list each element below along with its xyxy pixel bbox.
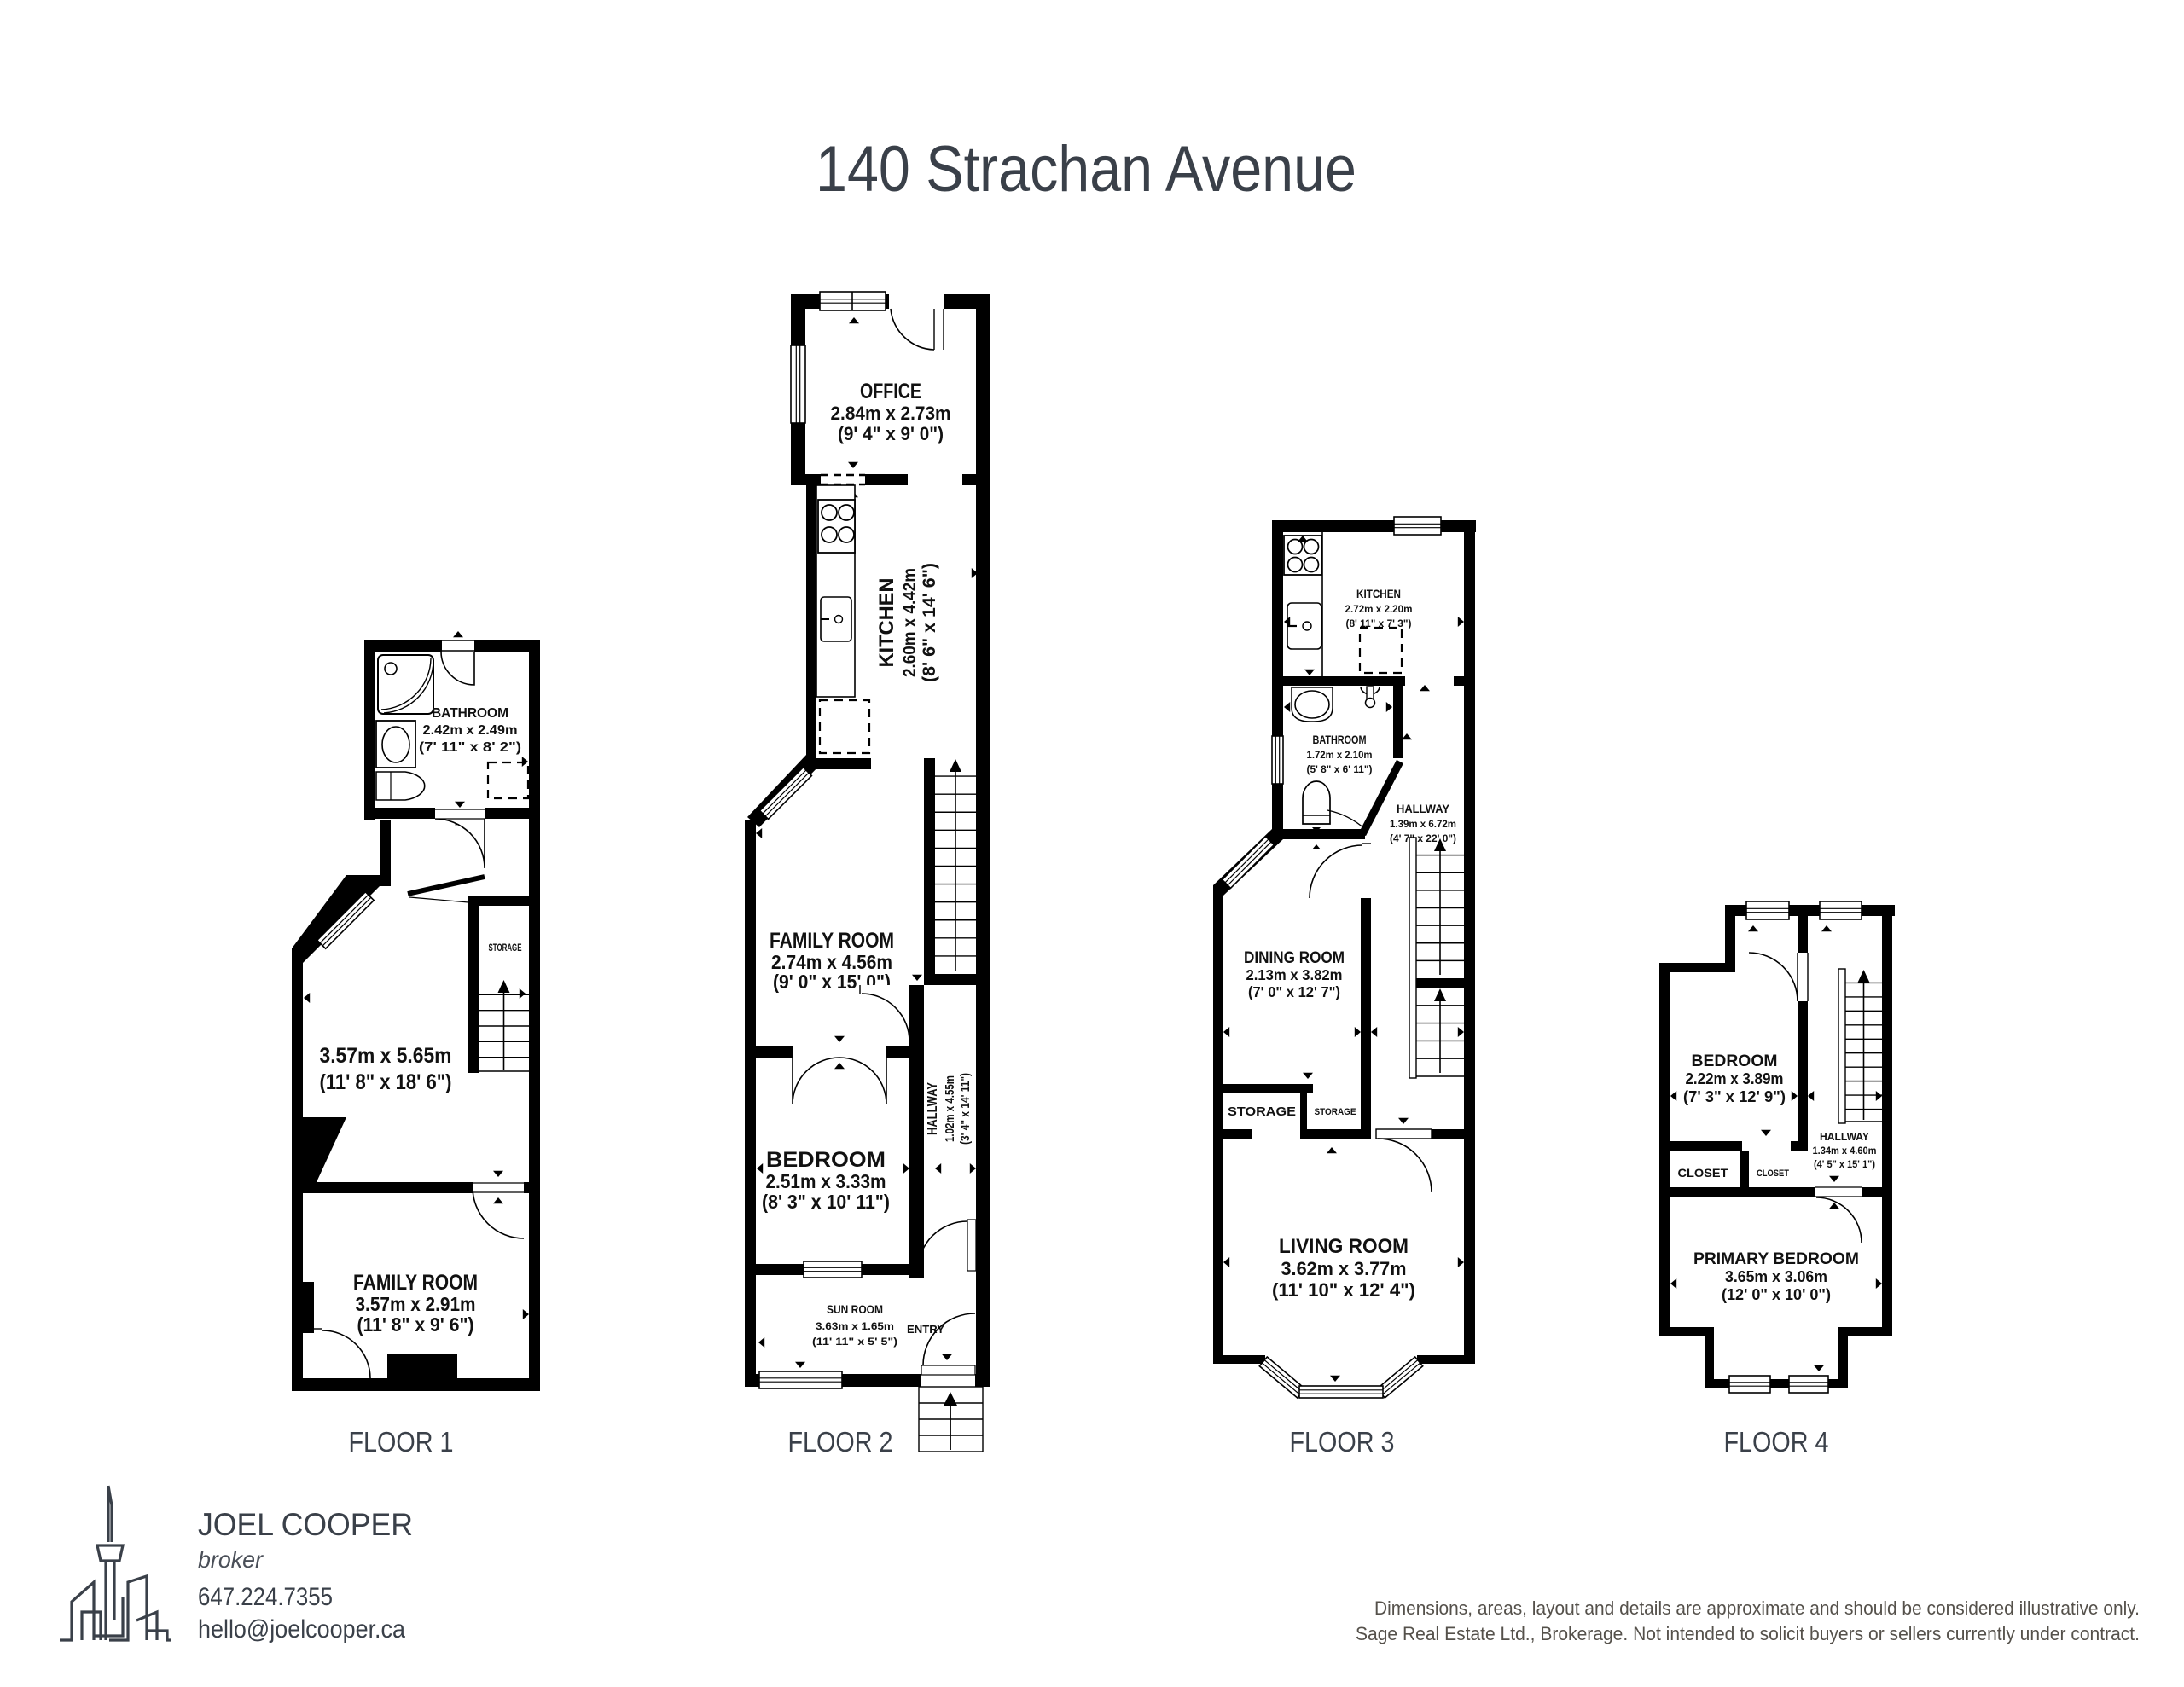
svg-text:FLOOR 2: FLOOR 2 bbox=[788, 1426, 893, 1458]
svg-text:2.72m x 2.20m: 2.72m x 2.20m bbox=[1345, 603, 1413, 615]
svg-text:140 Strachan Avenue: 140 Strachan Avenue bbox=[816, 133, 1356, 206]
svg-text:1.72m x 2.10m: 1.72m x 2.10m bbox=[1307, 749, 1373, 761]
svg-text:3.63m x 1.65m: 3.63m x 1.65m bbox=[816, 1320, 894, 1332]
svg-text:2.22m x 3.89m: 2.22m x 3.89m bbox=[1686, 1070, 1784, 1087]
svg-text:(8' 6" x 14' 6"): (8' 6" x 14' 6") bbox=[920, 563, 939, 682]
svg-text:(7' 3" x 12' 9"): (7' 3" x 12' 9") bbox=[1683, 1088, 1786, 1105]
svg-text:SUN ROOM: SUN ROOM bbox=[827, 1303, 883, 1316]
svg-text:2.42m x 2.49m: 2.42m x 2.49m bbox=[423, 723, 518, 738]
svg-text:DINING ROOM: DINING ROOM bbox=[1244, 949, 1345, 967]
svg-text:STORAGE: STORAGE bbox=[1315, 1107, 1356, 1117]
svg-text:FLOOR 1: FLOOR 1 bbox=[349, 1426, 454, 1458]
svg-text:(4' 5" x 15' 1"): (4' 5" x 15' 1") bbox=[1814, 1160, 1875, 1170]
svg-text:1.39m x 6.72m: 1.39m x 6.72m bbox=[1390, 818, 1456, 830]
svg-text:STORAGE: STORAGE bbox=[1228, 1105, 1296, 1119]
svg-text:3.65m x 3.06m: 3.65m x 3.06m bbox=[1725, 1268, 1827, 1285]
svg-text:PRIMARY BEDROOM: PRIMARY BEDROOM bbox=[1693, 1249, 1859, 1268]
svg-text:FAMILY ROOM: FAMILY ROOM bbox=[770, 929, 894, 953]
svg-text:hello@joelcooper.ca: hello@joelcooper.ca bbox=[198, 1615, 405, 1644]
svg-text:(11' 10" x 12' 4"): (11' 10" x 12' 4") bbox=[1272, 1279, 1415, 1301]
svg-text:BATHROOM: BATHROOM bbox=[1313, 733, 1367, 746]
svg-text:(4' 7" x 22' 0"): (4' 7" x 22' 0") bbox=[1390, 832, 1456, 844]
svg-text:FAMILY ROOM: FAMILY ROOM bbox=[353, 1271, 478, 1295]
svg-text:2.60m x 4.42m: 2.60m x 4.42m bbox=[900, 568, 920, 677]
svg-text:FLOOR 3: FLOOR 3 bbox=[1290, 1426, 1395, 1458]
svg-text:(7' 11" x 8' 2"): (7' 11" x 8' 2") bbox=[419, 740, 521, 755]
svg-text:Dimensions, areas, layout and: Dimensions, areas, layout and details ar… bbox=[1374, 1597, 2140, 1619]
svg-text:1.34m x 4.60m: 1.34m x 4.60m bbox=[1813, 1146, 1877, 1157]
svg-text:OFFICE: OFFICE bbox=[860, 380, 921, 403]
svg-text:2.51m x 3.33m: 2.51m x 3.33m bbox=[766, 1170, 886, 1192]
svg-text:3.57m x 5.65m: 3.57m x 5.65m bbox=[320, 1044, 452, 1068]
svg-text:(12' 0" x 10' 0"): (12' 0" x 10' 0") bbox=[1722, 1286, 1831, 1303]
svg-text:1.02m x 4.55m: 1.02m x 4.55m bbox=[943, 1075, 957, 1142]
svg-text:HALLWAY: HALLWAY bbox=[1397, 803, 1449, 815]
svg-text:HALLWAY: HALLWAY bbox=[1820, 1131, 1870, 1143]
svg-text:HALLWAY: HALLWAY bbox=[926, 1082, 940, 1135]
svg-text:LIVING ROOM: LIVING ROOM bbox=[1279, 1235, 1409, 1258]
svg-text:BEDROOM: BEDROOM bbox=[1692, 1052, 1778, 1070]
svg-text:BATHROOM: BATHROOM bbox=[432, 706, 508, 721]
svg-text:(9' 4" x 9' 0"): (9' 4" x 9' 0") bbox=[838, 423, 944, 444]
svg-text:JOEL COOPER: JOEL COOPER bbox=[198, 1507, 413, 1542]
svg-text:3.57m x 2.91m: 3.57m x 2.91m bbox=[356, 1293, 476, 1315]
svg-text:(5' 8" x 6' 11"): (5' 8" x 6' 11") bbox=[1307, 763, 1373, 775]
svg-text:3.62m x 3.77m: 3.62m x 3.77m bbox=[1281, 1258, 1407, 1279]
svg-text:(11' 8" x 9' 6"): (11' 8" x 9' 6") bbox=[357, 1313, 474, 1336]
svg-text:(11' 11" x 5' 5"): (11' 11" x 5' 5") bbox=[812, 1336, 897, 1348]
svg-text:647.224.7355: 647.224.7355 bbox=[198, 1583, 333, 1611]
svg-text:broker: broker bbox=[198, 1546, 264, 1573]
svg-text:CLOSET: CLOSET bbox=[1757, 1168, 1789, 1179]
svg-text:2.84m x 2.73m: 2.84m x 2.73m bbox=[831, 403, 951, 424]
svg-text:ENTRY: ENTRY bbox=[907, 1323, 944, 1336]
svg-text:FLOOR 4: FLOOR 4 bbox=[1724, 1426, 1829, 1458]
svg-text:(11' 8" x 18' 6"): (11' 8" x 18' 6") bbox=[320, 1070, 452, 1094]
svg-text:Sage Real Estate Ltd., Brokera: Sage Real Estate Ltd., Brokerage. Not in… bbox=[1356, 1623, 2140, 1644]
svg-text:(8' 3" x 10' 11"): (8' 3" x 10' 11") bbox=[762, 1191, 890, 1213]
svg-text:(7' 0" x 12' 7"): (7' 0" x 12' 7") bbox=[1248, 983, 1340, 1000]
svg-text:KITCHEN: KITCHEN bbox=[1356, 588, 1401, 600]
svg-text:BEDROOM: BEDROOM bbox=[766, 1148, 886, 1172]
svg-text:2.13m x 3.82m: 2.13m x 3.82m bbox=[1246, 966, 1343, 983]
svg-text:(3' 4" x 14' 11"): (3' 4" x 14' 11") bbox=[958, 1073, 973, 1145]
svg-text:STORAGE: STORAGE bbox=[489, 942, 522, 954]
svg-text:KITCHEN: KITCHEN bbox=[875, 578, 898, 668]
svg-text:CLOSET: CLOSET bbox=[1678, 1166, 1728, 1180]
